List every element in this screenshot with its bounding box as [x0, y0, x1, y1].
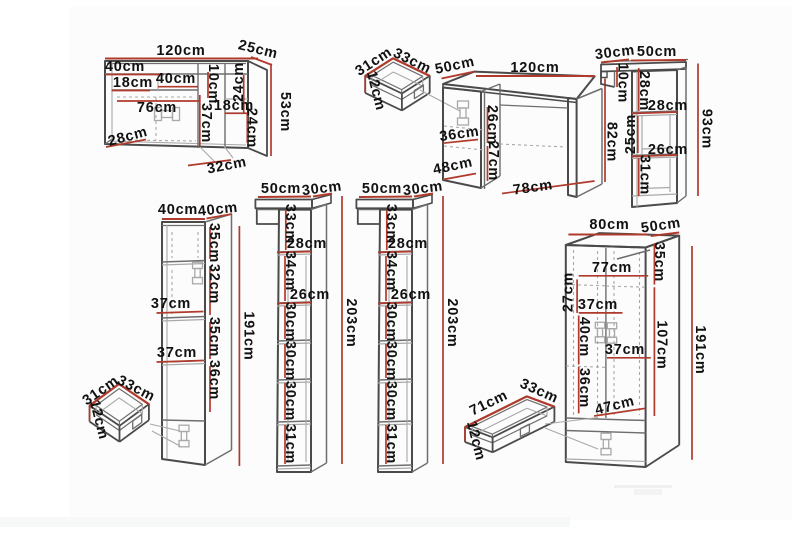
svg-text:80cm: 80cm — [589, 217, 629, 233]
svg-text:40cm: 40cm — [158, 202, 198, 218]
svg-text:203cm: 203cm — [444, 298, 460, 347]
svg-text:28cm: 28cm — [388, 236, 428, 252]
svg-text:76cm: 76cm — [137, 100, 177, 116]
svg-text:203cm: 203cm — [343, 298, 359, 347]
svg-text:27cm: 27cm — [561, 272, 577, 312]
svg-text:30cm: 30cm — [282, 381, 298, 421]
svg-text:18cm: 18cm — [113, 75, 153, 91]
svg-text:37cm: 37cm — [578, 297, 618, 313]
svg-text:40cm: 40cm — [576, 317, 592, 357]
svg-text:35cm: 35cm — [206, 317, 222, 357]
svg-text:30cm: 30cm — [282, 341, 298, 381]
svg-text:34cm: 34cm — [282, 251, 298, 291]
svg-text:31cm: 31cm — [383, 424, 399, 464]
svg-text:34cm: 34cm — [383, 251, 399, 291]
svg-text:82cm: 82cm — [604, 122, 620, 162]
svg-text:26cm: 26cm — [648, 142, 688, 158]
svg-text:32cm: 32cm — [206, 264, 222, 304]
svg-text:120cm: 120cm — [510, 60, 559, 76]
svg-text:26cm: 26cm — [290, 287, 330, 303]
svg-text:50cm: 50cm — [261, 181, 301, 197]
svg-text:30cm: 30cm — [383, 381, 399, 421]
svg-text:77cm: 77cm — [592, 260, 632, 276]
svg-text:30cm: 30cm — [383, 302, 399, 342]
svg-text:27cm: 27cm — [485, 141, 501, 181]
svg-text:28cm: 28cm — [287, 236, 327, 252]
svg-text:35cm: 35cm — [651, 242, 667, 282]
svg-text:10cm: 10cm — [615, 63, 631, 103]
svg-text:24cm: 24cm — [244, 108, 260, 148]
svg-text:93cm: 93cm — [699, 109, 715, 149]
svg-text:26cm: 26cm — [391, 287, 431, 303]
svg-text:36cm: 36cm — [206, 360, 222, 400]
svg-text:120cm: 120cm — [156, 43, 205, 59]
svg-text:37cm: 37cm — [198, 103, 214, 143]
svg-text:50cm: 50cm — [637, 44, 677, 60]
svg-text:37cm: 37cm — [157, 345, 197, 361]
svg-text:30cm: 30cm — [282, 302, 298, 342]
svg-text:50cm: 50cm — [362, 181, 402, 197]
svg-text:26cm: 26cm — [484, 105, 500, 145]
svg-text:30cm: 30cm — [383, 341, 399, 381]
svg-text:36cm: 36cm — [576, 368, 592, 408]
svg-text:31cm: 31cm — [637, 155, 653, 195]
svg-text:107cm: 107cm — [654, 320, 670, 369]
svg-text:191cm: 191cm — [241, 311, 257, 360]
svg-text:24cm: 24cm — [231, 62, 247, 102]
svg-text:37cm: 37cm — [605, 342, 645, 358]
svg-text:25cm: 25cm — [623, 114, 639, 154]
svg-text:53cm: 53cm — [277, 92, 293, 132]
svg-text:28cm: 28cm — [648, 98, 688, 114]
svg-text:31cm: 31cm — [282, 424, 298, 464]
svg-text:37cm: 37cm — [151, 296, 191, 312]
svg-text:35cm: 35cm — [206, 223, 222, 263]
svg-text:40cm: 40cm — [156, 71, 196, 87]
svg-text:191cm: 191cm — [692, 325, 708, 374]
svg-text:40cm: 40cm — [105, 59, 145, 75]
